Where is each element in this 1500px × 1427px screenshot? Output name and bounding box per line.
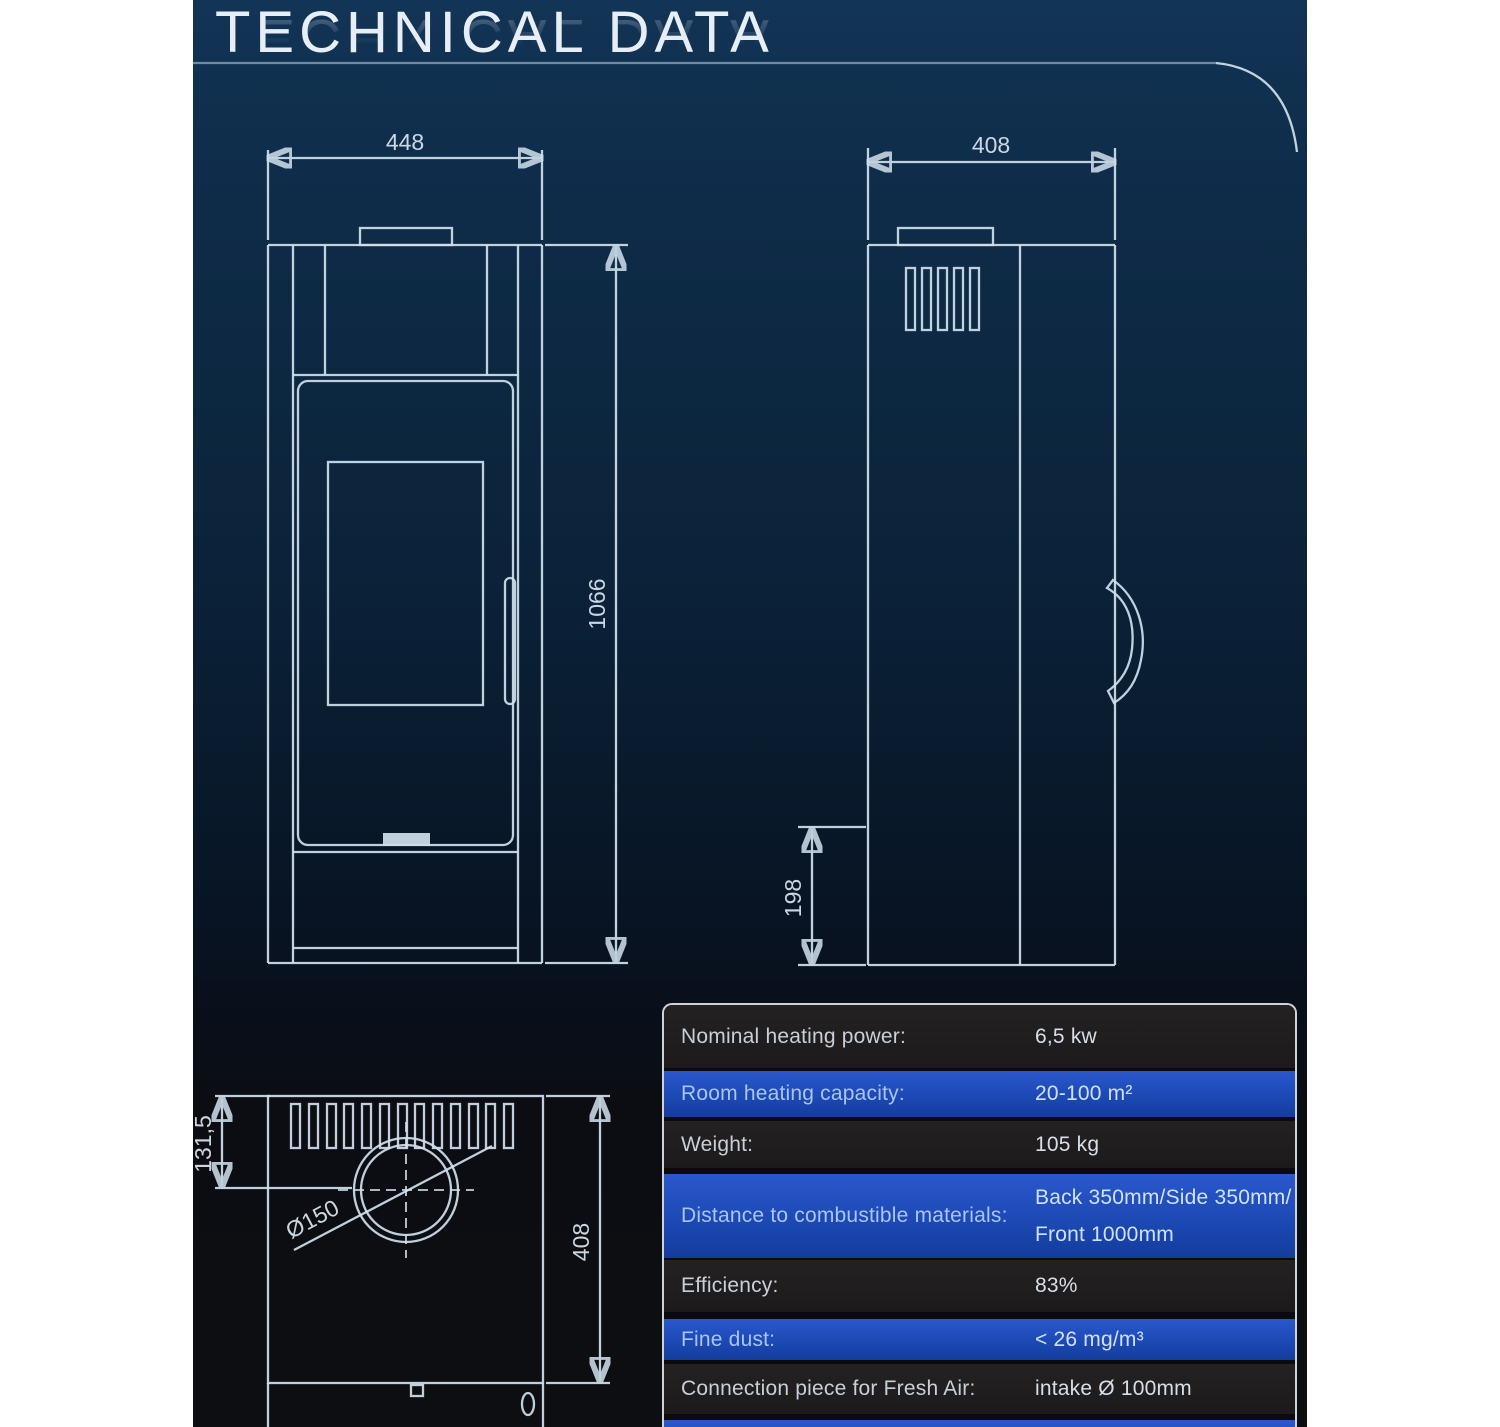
side-vent-slots — [906, 268, 979, 330]
table-row: Fine dust: < 26 mg/m³ — [664, 1319, 1295, 1360]
foot-detail — [411, 1385, 423, 1396]
flue-collar-side — [898, 228, 993, 245]
header-rule-and-swoosh — [193, 63, 1297, 152]
top-vent-slots — [291, 1104, 513, 1148]
datasheet-page: TECHNICAL DATA TECHNICAL DATA — [0, 0, 1500, 1427]
flue-collar-front — [360, 228, 452, 245]
table-row: Distance to combustible materials: Back … — [664, 1174, 1295, 1258]
row-label: Room heating capacity: — [681, 1082, 1035, 1106]
top-depth-dim-label: 408 — [568, 1223, 594, 1261]
front-height-dim-label: 1066 — [584, 578, 610, 629]
row-value: 6,5 kw — [1035, 1025, 1295, 1049]
row-value: Back 350mm/Side 350mm/ Front 1000mm — [1035, 1179, 1295, 1253]
row-value: 20-100 m² — [1035, 1082, 1295, 1106]
side-base-height-dim-label: 198 — [780, 879, 806, 917]
side-depth-dim-label: 408 — [972, 132, 1010, 158]
top-view-drawing: Ø150 131,5 408 — [190, 1096, 610, 1427]
row-label: Distance to combustible materials: — [681, 1204, 1035, 1228]
table-row: Room heating capacity: 20-100 m² — [664, 1071, 1295, 1117]
table-row: Weight: 105 kg — [664, 1121, 1295, 1168]
row-value: intake Ø 100mm — [1035, 1377, 1295, 1401]
table-row: Nominal heating power: 6,5 kw — [664, 1005, 1295, 1068]
row-label: Efficiency: — [681, 1274, 1035, 1298]
row-label: Fine dust: — [681, 1328, 1035, 1352]
table-row: Connection piece for Fresh Air: intake Ø… — [664, 1364, 1295, 1414]
door-handle-side — [1107, 580, 1143, 703]
row-label: Weight: — [681, 1133, 1035, 1157]
row-value: 105 kg — [1035, 1133, 1295, 1157]
stove-door — [298, 381, 513, 845]
row-value-line1: Back 350mm/Side 350mm/ — [1035, 1186, 1292, 1209]
foot-oval-detail — [522, 1393, 534, 1415]
row-label: Connection piece for Fresh Air: — [681, 1377, 1035, 1401]
spec-table: Nominal heating power: 6,5 kw Room heati… — [662, 1003, 1297, 1427]
row-value-line2: Front 1000mm — [1035, 1223, 1174, 1246]
door-window — [328, 462, 483, 705]
side-view-drawing: 408 198 — [780, 132, 1143, 965]
table-row: Efficiency: 83% — [664, 1260, 1295, 1312]
row-label: Nominal heating power: — [681, 1025, 1035, 1049]
flue-offset-dim-label: 131,5 — [190, 1115, 216, 1173]
door-latch — [383, 833, 430, 846]
front-view-drawing: 448 1066 — [268, 129, 628, 963]
flue-diameter-label: Ø150 — [281, 1194, 343, 1243]
row-value: 83% — [1035, 1274, 1295, 1298]
table-row-clipped — [664, 1420, 1295, 1427]
front-width-dim-label: 448 — [386, 129, 424, 155]
row-value: < 26 mg/m³ — [1035, 1328, 1295, 1352]
